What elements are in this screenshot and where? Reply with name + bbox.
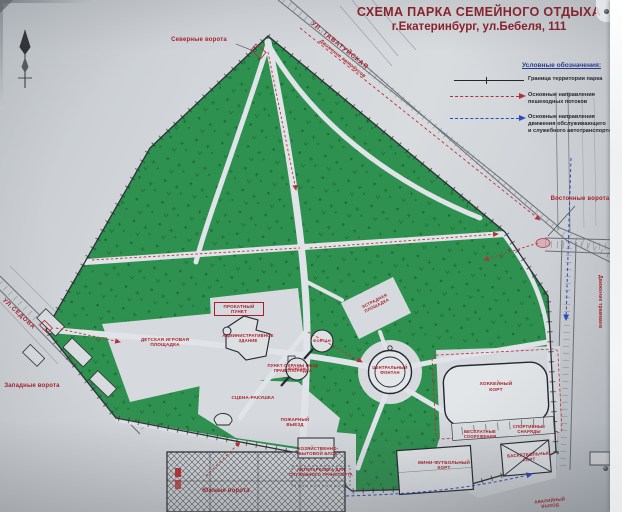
label-parking: АВТОПАРКОВКА ДЛЯ СЛУЖЕБНОГО ТРАНСПОРТА <box>288 468 354 478</box>
sign-frame-corner <box>0 0 13 13</box>
sign-title: СХЕМА ПАРКА СЕМЕЙНОГО ОТДЫХА г.Екатеринб… <box>336 5 622 33</box>
label-utility-block: ХОЗЯЙСТВЕННО- БЫТОВОЙ БЛОК <box>292 446 344 456</box>
title-line-2: г.Екатеринбург, ул.Бебеля, 111 <box>336 20 622 33</box>
label-playground: ДЕТСКАЯ ИГРОВАЯ ПЛОЩАДКА <box>134 337 196 348</box>
label-tram-traffic: Движение трамваев <box>596 264 602 340</box>
stage-shell-shape <box>214 413 232 425</box>
screw-icon <box>604 9 609 14</box>
boundary-line-symbol <box>448 76 528 85</box>
label-mini-football: МИНИ-ФУТБОЛЬНЫЙ КОРТ <box>414 460 474 471</box>
label-free-equipment: БЕСПЛАТНЫЕ СООРУЖЕНИЯ <box>458 430 502 440</box>
legend-item-pedestrian: Основные направления пешеходных потоков <box>448 92 622 107</box>
red-dashed-arrow-symbol <box>448 92 528 101</box>
label-hockey-rink: ХОККЕЙНЫЙ КОРТ <box>470 382 522 393</box>
label-admin-building: АДМИНИСТРАТИВНОЕ ЗДАНИЕ <box>220 333 276 343</box>
hockey-rink-shape <box>443 361 550 426</box>
legend-item-label: Граница территории парка <box>528 76 602 83</box>
label-rental-point: ПРОКАТНЫЙ ПУНКТ <box>214 302 264 316</box>
compass-icon <box>18 30 32 88</box>
sign-frame-left <box>0 0 3 110</box>
legend-item-label: Основные направления движения обслуживаю… <box>528 114 611 136</box>
legend-item-label: Основные направления пешеходных потоков <box>528 92 595 107</box>
label-central-fountain: ЦЕНТРАЛЬНЫЙ ФОНТАН <box>366 366 414 376</box>
label-sports-gear: СПОРТИВНЫЕ СНАРЯДЫ <box>506 425 552 435</box>
label-fountain-1: ФОНТАН <box>309 339 335 343</box>
sign-edge <box>610 0 622 512</box>
blue-dashed-arrow-symbol <box>448 114 528 123</box>
legend-item-service: Основные направления движения обслуживаю… <box>448 114 622 136</box>
label-fire-exit: ПОЖАРНЫЙ ВЫЕЗД <box>276 417 314 427</box>
label-stage-shell: СЦЕНА-РАКУШКА <box>224 395 282 400</box>
screw-icon <box>603 466 608 471</box>
label-west-gate: Западные ворота <box>1 383 63 390</box>
legend-heading: Условные обозначения: <box>522 62 622 69</box>
sign-frame-top <box>0 0 96 3</box>
title-line-1: СХЕМА ПАРКА СЕМЕЙНОГО ОТДЫХА <box>336 5 622 19</box>
legend-item-boundary: Граница территории парка <box>448 76 622 85</box>
label-fountain-2: ФОНТАН <box>284 367 310 371</box>
label-north-gate: Северные ворота <box>160 37 238 44</box>
label-east-gate: Восточные ворота <box>542 196 618 203</box>
legend: Условные обозначения: Граница территории… <box>448 62 622 135</box>
park-sign-photo: СХЕМА ПАРКА СЕМЕЙНОГО ОТДЫХА г.Екатеринб… <box>0 0 622 512</box>
label-south-gate: Южные ворота <box>194 488 258 495</box>
